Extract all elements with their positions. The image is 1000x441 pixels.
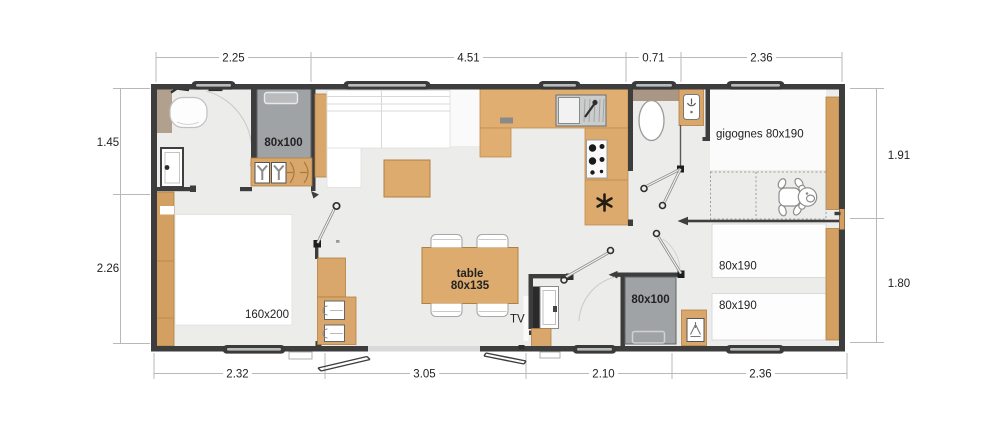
svg-text:2.26: 2.26 (97, 263, 119, 275)
svg-text:80x190: 80x190 (719, 300, 757, 312)
svg-text:2.36: 2.36 (750, 53, 772, 65)
svg-text:2.25: 2.25 (222, 53, 244, 65)
svg-text:1.91: 1.91 (888, 150, 910, 162)
svg-text:gigognes 80x190: gigognes 80x190 (716, 129, 804, 141)
svg-text:0.71: 0.71 (642, 53, 664, 65)
svg-text:80x100: 80x100 (264, 137, 302, 149)
svg-text:80x135: 80x135 (451, 280, 490, 292)
svg-text:1.45: 1.45 (97, 137, 119, 149)
svg-text:160x200: 160x200 (245, 309, 289, 321)
svg-text:80x190: 80x190 (719, 261, 757, 273)
svg-text:2.32: 2.32 (226, 369, 248, 381)
svg-text:3.05: 3.05 (413, 369, 435, 381)
svg-text:table: table (457, 268, 484, 280)
svg-text:2.10: 2.10 (592, 369, 614, 381)
svg-text:2.36: 2.36 (749, 369, 771, 381)
svg-text:TV: TV (510, 314, 525, 326)
svg-text:80x100: 80x100 (631, 294, 669, 306)
svg-text:4.51: 4.51 (457, 53, 479, 65)
svg-text:1.80: 1.80 (888, 278, 910, 290)
